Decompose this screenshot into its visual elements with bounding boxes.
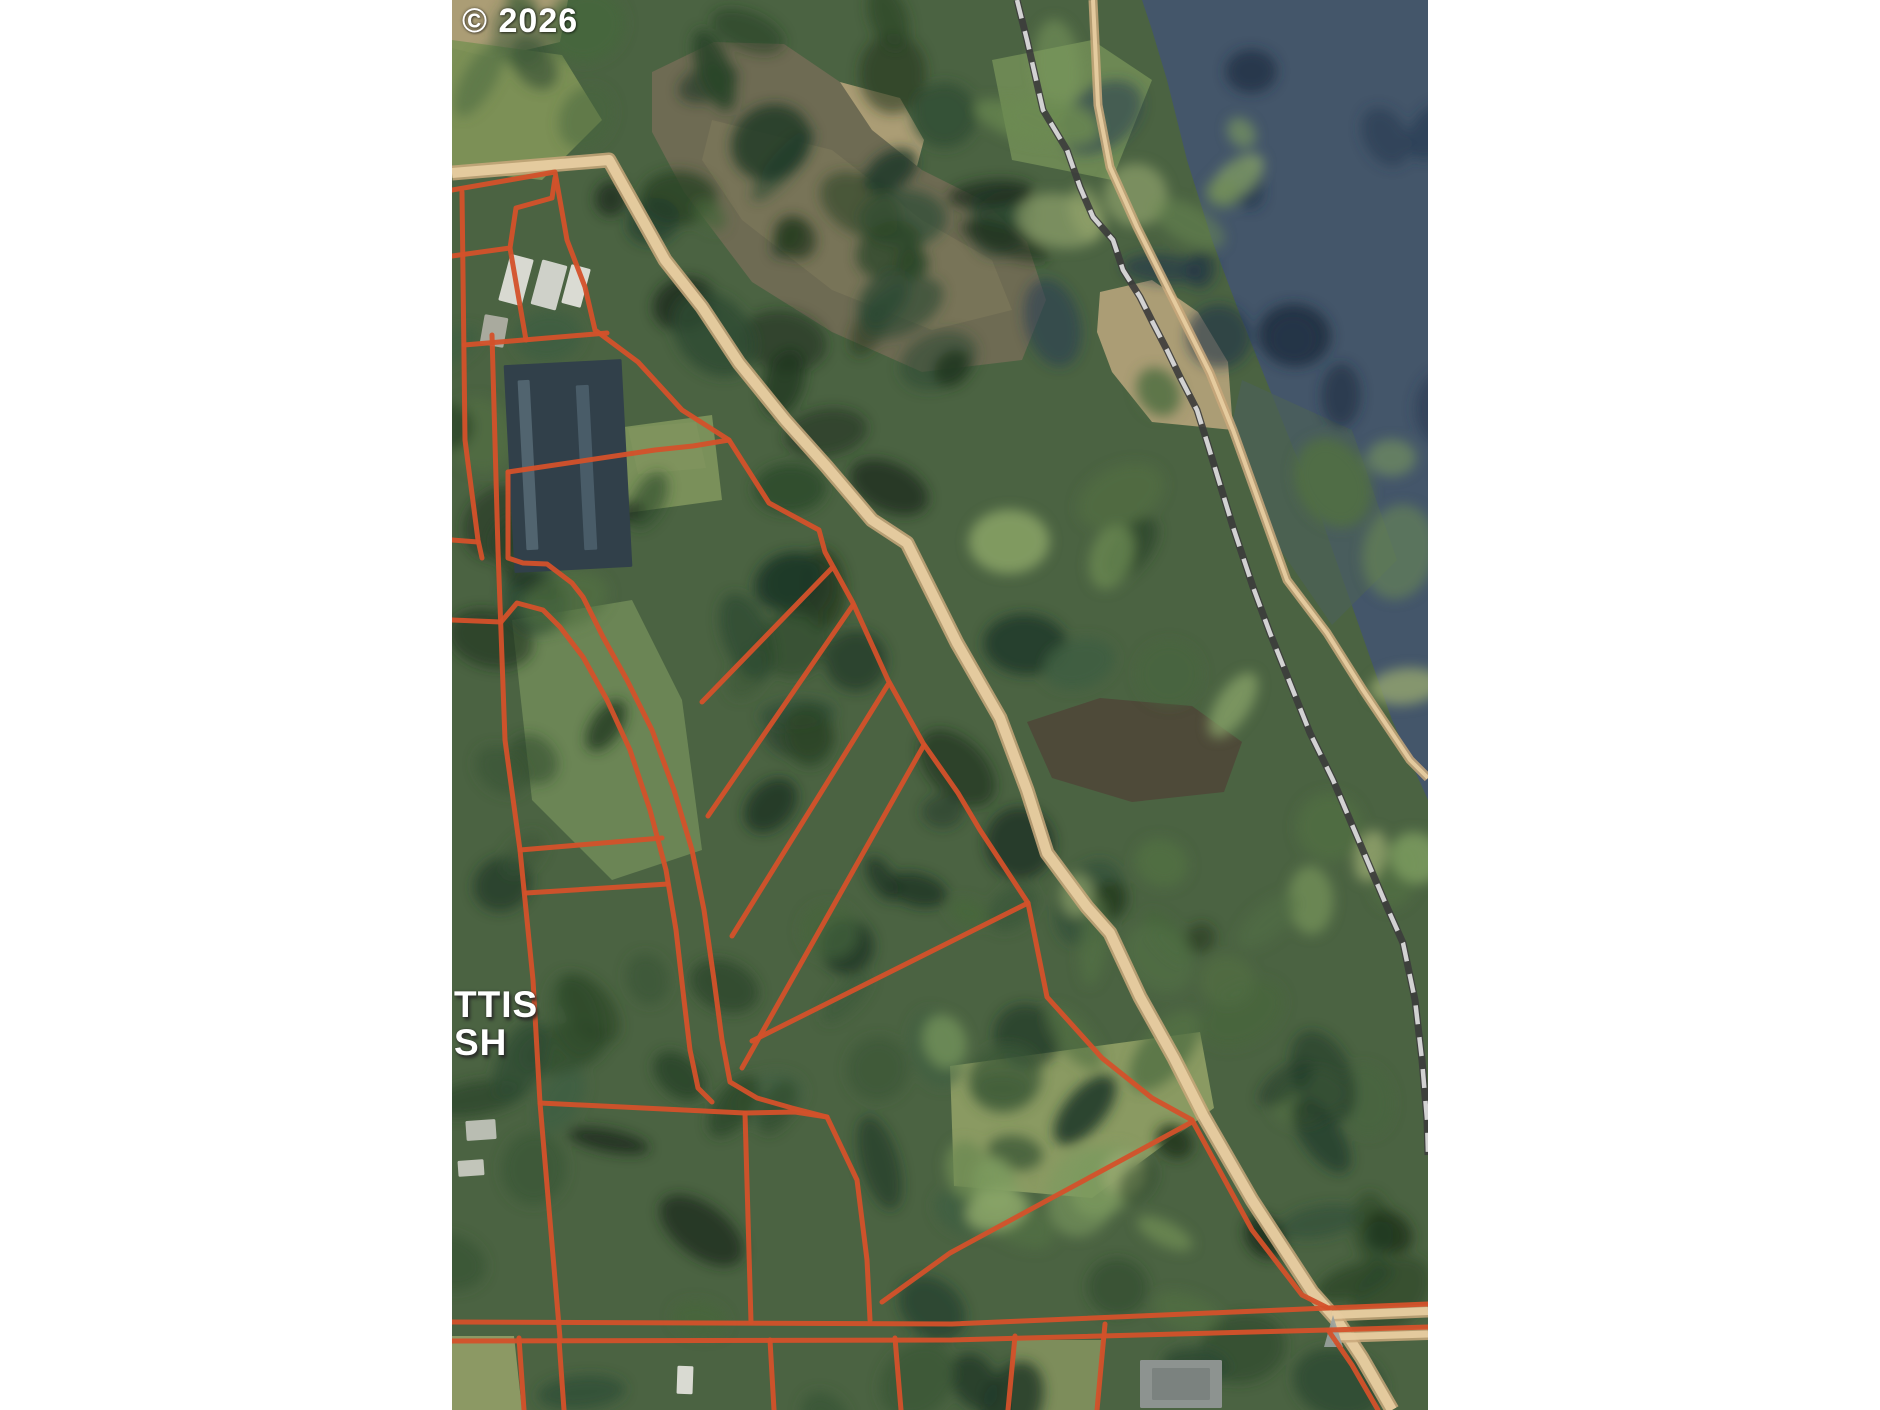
page: { "labels": { "copyright": "© 2026", "pa… bbox=[0, 0, 1880, 1410]
place-name-line-1: TTIS bbox=[454, 986, 538, 1024]
place-name-line-2: SH bbox=[454, 1024, 538, 1062]
building bbox=[1152, 1368, 1210, 1400]
parcel-line-stub-b bbox=[452, 620, 501, 622]
aerial-map-image bbox=[452, 0, 1428, 1410]
grass-patch bbox=[452, 1336, 522, 1410]
left-margin bbox=[0, 0, 452, 1410]
building bbox=[457, 1159, 484, 1177]
map-viewport[interactable]: © 2026 TTIS SH bbox=[452, 0, 1428, 1410]
building bbox=[677, 1366, 694, 1395]
place-name-label-clipped: TTIS SH bbox=[454, 986, 538, 1063]
road-spur-upper bbox=[1332, 1311, 1428, 1315]
right-margin bbox=[1428, 0, 1880, 1410]
parcel-line-stub-a bbox=[452, 540, 478, 542]
road-spur-lower bbox=[1332, 1334, 1428, 1337]
building bbox=[465, 1119, 496, 1141]
copyright-label: © 2026 bbox=[462, 2, 578, 41]
